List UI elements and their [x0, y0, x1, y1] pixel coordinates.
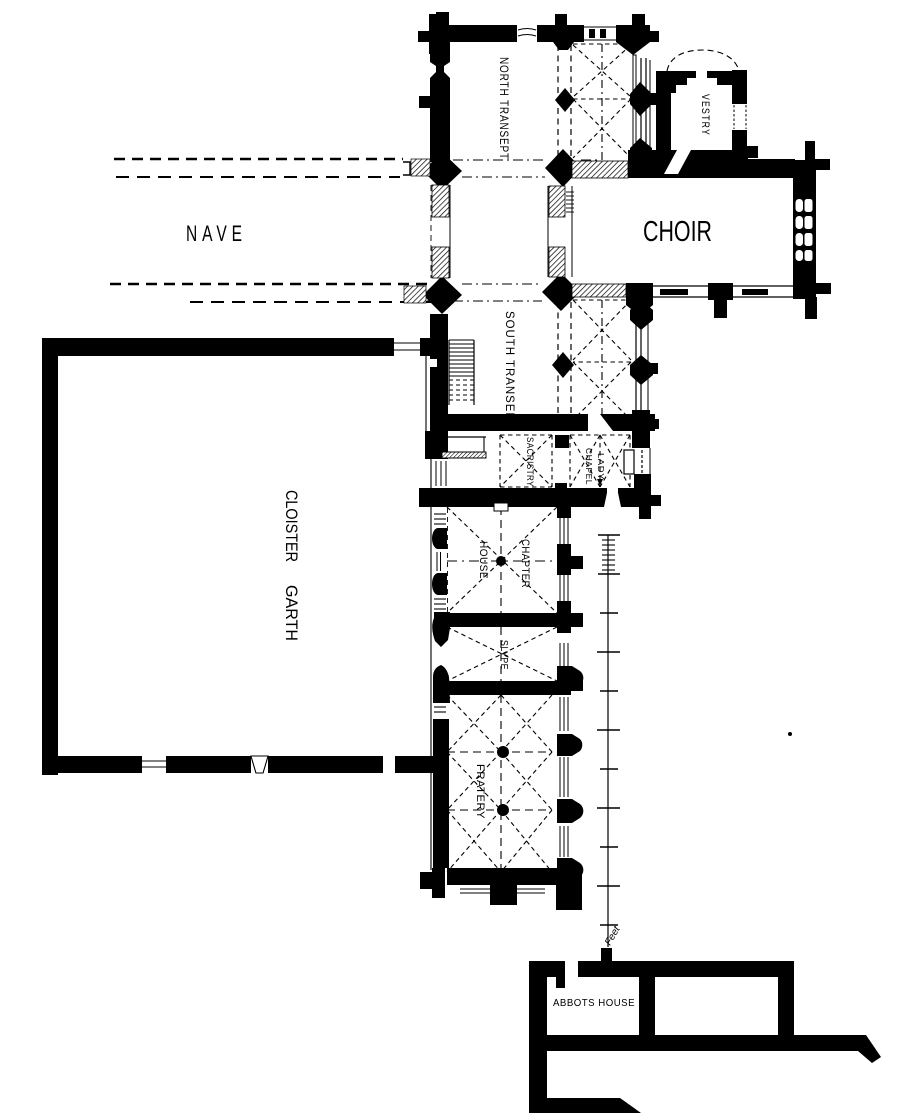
svg-text:CHAPTER: CHAPTER: [519, 539, 531, 588]
svg-text:ABBOTS HOUSE: ABBOTS HOUSE: [553, 998, 635, 1009]
svg-text:SLYPE: SLYPE: [498, 640, 509, 670]
svg-text:GARTH: GARTH: [282, 585, 301, 641]
svg-text:HOUSE: HOUSE: [477, 541, 489, 579]
svg-text:LADY: LADY: [596, 453, 605, 480]
svg-text:NAVE: NAVE: [186, 221, 247, 246]
svg-text:NORTH TRANSEPT: NORTH TRANSEPT: [497, 57, 511, 160]
svg-text:CHAPEL: CHAPEL: [584, 448, 594, 485]
svg-text:CLOISTER: CLOISTER: [282, 490, 301, 562]
svg-text:FRATERY: FRATERY: [474, 764, 486, 819]
svg-text:CHOIR: CHOIR: [643, 216, 712, 248]
svg-text:SOUTH TRANSEPT: SOUTH TRANSEPT: [503, 311, 517, 429]
svg-text:VESTRY: VESTRY: [699, 94, 711, 136]
svg-text:SACRISTRY: SACRISTRY: [525, 437, 535, 487]
